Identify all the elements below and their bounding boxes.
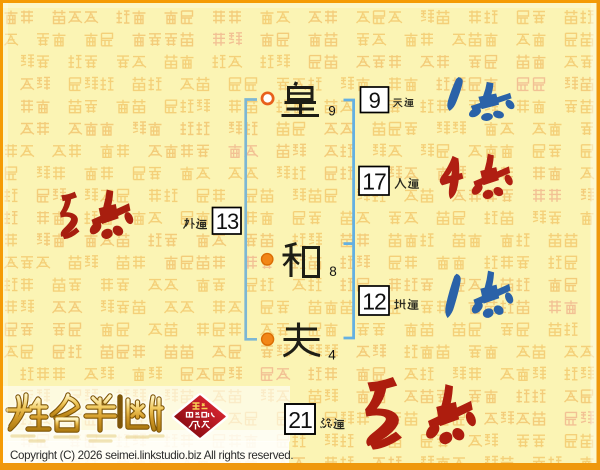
svg-text:9: 9	[328, 104, 336, 119]
svg-text:12: 12	[362, 289, 386, 315]
svg-text:13: 13	[216, 209, 239, 234]
svg-text:17: 17	[362, 169, 386, 195]
svg-text:Copyright (C) 2026 seimei.link: Copyright (C) 2026 seimei.linkstudio.biz…	[10, 449, 293, 462]
svg-text:4: 4	[328, 348, 336, 363]
svg-text:8: 8	[329, 264, 337, 279]
svg-text:21: 21	[288, 407, 312, 433]
svg-text:9: 9	[369, 88, 381, 113]
